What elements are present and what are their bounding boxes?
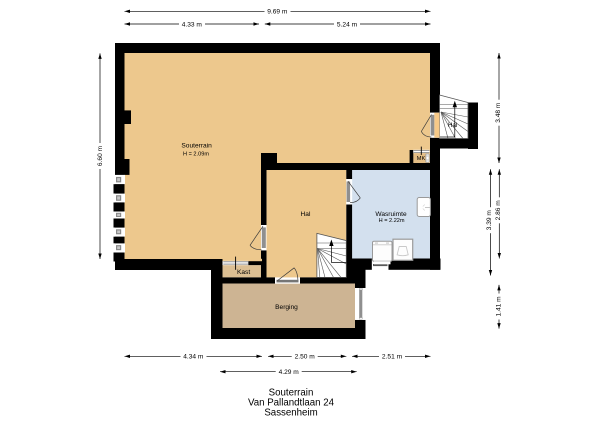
svg-text:3.48 m: 3.48 m: [495, 102, 502, 123]
svg-text:Kast: Kast: [237, 269, 250, 276]
svg-text:Sassenheim: Sassenheim: [264, 408, 317, 419]
svg-text:5.24 m: 5.24 m: [337, 21, 358, 28]
svg-text:2.50 m: 2.50 m: [295, 354, 316, 361]
svg-text:2.51 m: 2.51 m: [382, 354, 403, 361]
svg-text:9.69 m: 9.69 m: [267, 9, 288, 16]
svg-text:2.86 m: 2.86 m: [495, 200, 502, 221]
svg-text:6.60 m: 6.60 m: [97, 145, 104, 166]
svg-text:MK: MK: [417, 156, 426, 162]
svg-text:H = 2.22m: H = 2.22m: [379, 218, 405, 224]
svg-text:4.29 m: 4.29 m: [279, 369, 300, 376]
svg-text:Hal: Hal: [448, 122, 457, 129]
svg-text:Souterrain: Souterrain: [181, 142, 212, 149]
svg-text:H = 2.09m: H = 2.09m: [183, 151, 209, 157]
svg-text:4.33 m: 4.33 m: [182, 21, 203, 28]
svg-text:4.34 m: 4.34 m: [183, 354, 204, 361]
svg-text:3.39 m: 3.39 m: [486, 210, 493, 231]
svg-text:Berging: Berging: [275, 304, 298, 311]
svg-text:1.41 m: 1.41 m: [496, 296, 503, 317]
svg-text:Hal: Hal: [301, 211, 311, 218]
